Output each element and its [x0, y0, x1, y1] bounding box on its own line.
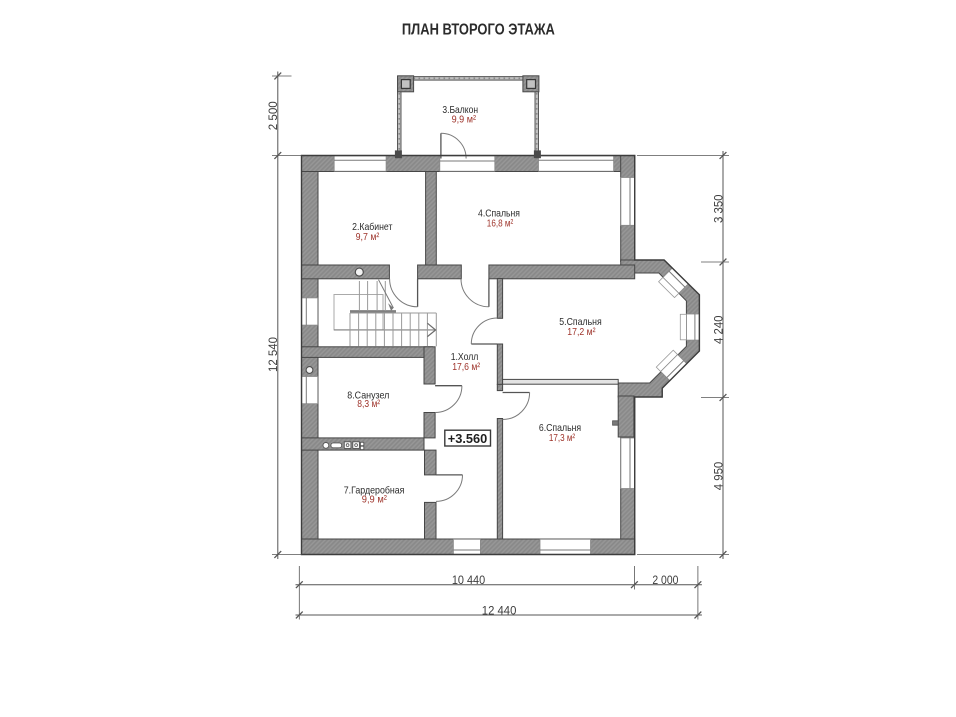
svg-text:4 950: 4 950 — [711, 462, 725, 491]
svg-text:4 240: 4 240 — [711, 315, 725, 344]
svg-text:10 440: 10 440 — [452, 573, 485, 587]
svg-text:17,3 м²: 17,3 м² — [549, 433, 576, 444]
svg-text:2 000: 2 000 — [652, 573, 678, 587]
svg-text:12 540: 12 540 — [266, 337, 280, 372]
svg-text:+3.560: +3.560 — [448, 431, 488, 446]
svg-text:17,6 м²: 17,6 м² — [452, 362, 480, 373]
svg-text:16,8 м²: 16,8 м² — [487, 218, 514, 229]
svg-text:17,2 м²: 17,2 м² — [567, 327, 596, 338]
svg-text:9,9 м²: 9,9 м² — [452, 114, 477, 125]
svg-text:2 500: 2 500 — [266, 101, 280, 130]
svg-text:ПЛАН ВТОРОГО ЭТАЖА: ПЛАН ВТОРОГО ЭТАЖА — [402, 22, 555, 39]
svg-text:9,9 м²: 9,9 м² — [362, 495, 388, 506]
svg-text:9,7 м²: 9,7 м² — [356, 232, 380, 243]
svg-text:3 350: 3 350 — [711, 194, 725, 223]
svg-text:8,3 м²: 8,3 м² — [357, 399, 380, 410]
svg-text:12 440: 12 440 — [482, 603, 517, 617]
